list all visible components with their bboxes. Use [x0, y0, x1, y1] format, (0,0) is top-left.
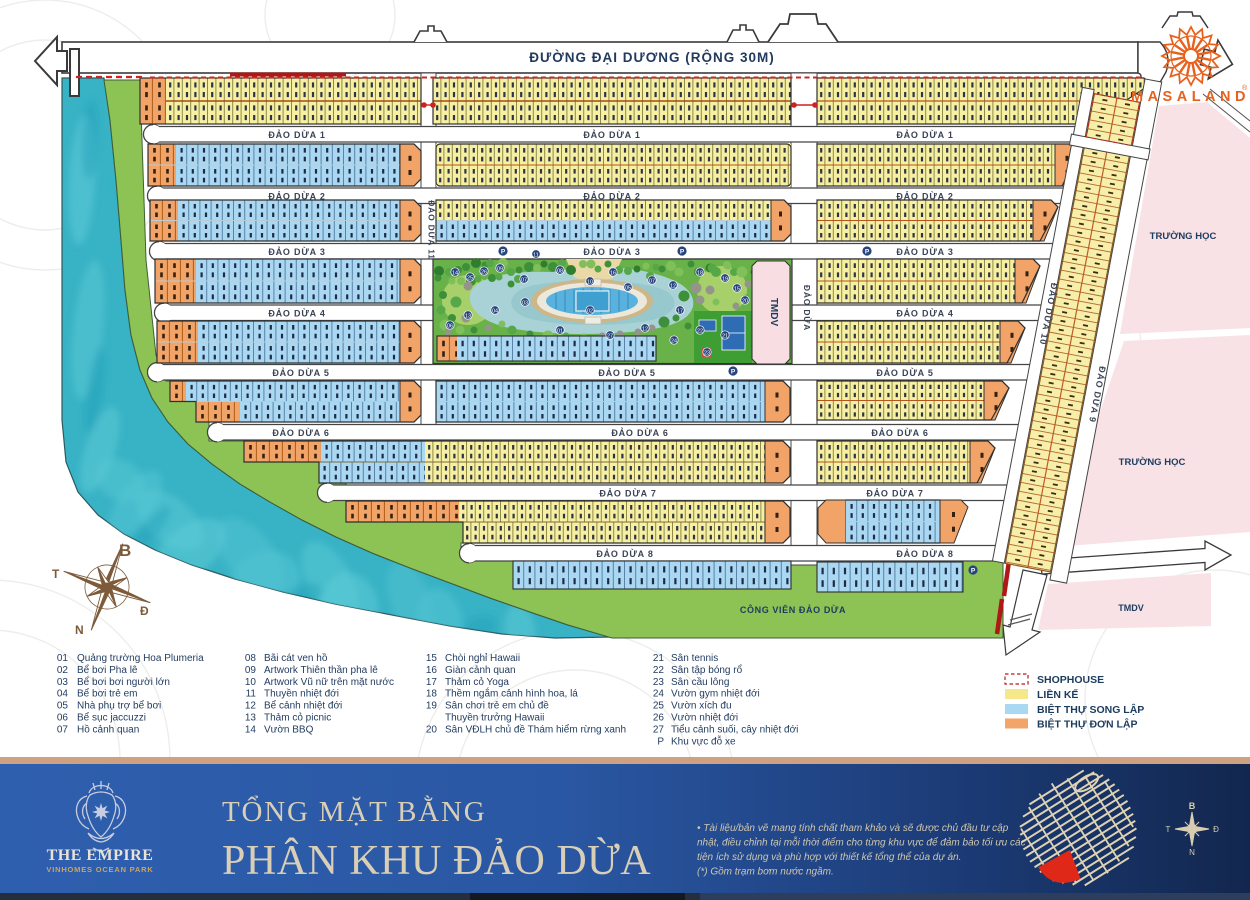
svg-text:TỔNG MẶT BẰNG: TỔNG MẶT BẰNG	[222, 794, 487, 828]
svg-text:Bãi cát ven hồ: Bãi cát ven hồ	[264, 652, 328, 664]
svg-text:Thuyền trưởng Hawaii: Thuyền trưởng Hawaii	[445, 712, 544, 724]
svg-text:ĐƯỜNG ĐẠI DƯƠNG (RỘNG 30M): ĐƯỜNG ĐẠI DƯƠNG (RỘNG 30M)	[529, 50, 774, 65]
svg-text:22: 22	[697, 328, 703, 334]
svg-text:19: 19	[722, 276, 728, 282]
svg-text:Hồ cảnh quan: Hồ cảnh quan	[77, 723, 139, 735]
svg-text:PHÂN KHU ĐẢO DỪA: PHÂN KHU ĐẢO DỪA	[222, 837, 651, 884]
svg-text:ĐẢO DỪA 1: ĐẢO DỪA 1	[268, 129, 325, 140]
svg-text:11: 11	[246, 689, 257, 700]
svg-text:ĐẢO DỪA: ĐẢO DỪA	[802, 285, 813, 331]
svg-text:ĐẢO DỪA 6: ĐẢO DỪA 6	[871, 427, 928, 438]
svg-text:Thuyền nhiệt đới: Thuyền nhiệt đới	[264, 688, 339, 700]
svg-text:BIỆT THỰ SONG LẬP: BIỆT THỰ SONG LẬP	[1037, 703, 1144, 716]
svg-text:nhật, điều chỉnh tại mỗi thời: nhật, điều chỉnh tại mỗi thời điểm cho t…	[697, 836, 1026, 849]
svg-text:13: 13	[245, 713, 257, 724]
svg-text:12: 12	[245, 701, 257, 712]
svg-text:23: 23	[653, 677, 665, 688]
svg-text:Bể bơi trẻ em: Bể bơi trẻ em	[77, 688, 137, 700]
svg-text:ĐẢO DỪA 2: ĐẢO DỪA 2	[268, 191, 325, 202]
svg-text:05: 05	[57, 701, 69, 712]
svg-text:03: 03	[57, 677, 69, 688]
svg-text:ĐẢO DỪA 3: ĐẢO DỪA 3	[896, 246, 953, 257]
svg-text:21: 21	[653, 653, 665, 664]
svg-text:15: 15	[734, 286, 740, 292]
svg-text:Bể bơi Pha lê: Bể bơi Pha lê	[77, 664, 138, 676]
svg-text:26: 26	[653, 713, 665, 724]
svg-text:TMDV: TMDV	[1118, 603, 1144, 613]
svg-text:26: 26	[481, 269, 487, 275]
svg-text:P: P	[680, 249, 685, 256]
svg-text:18: 18	[426, 689, 438, 700]
svg-text:Thềm ngắm cảnh hình hoa, lá: Thềm ngắm cảnh hình hoa, lá	[445, 687, 578, 700]
svg-text:ĐẢO DỪA 6: ĐẢO DỪA 6	[611, 427, 668, 438]
svg-text:N: N	[75, 623, 84, 637]
svg-text:Thảm cỏ picnic: Thảm cỏ picnic	[264, 712, 331, 724]
svg-text:21: 21	[722, 333, 728, 339]
svg-text:03: 03	[522, 300, 528, 306]
svg-text:06: 06	[57, 713, 69, 724]
svg-text:08: 08	[245, 653, 257, 664]
svg-text:TRƯỜNG HỌC: TRƯỜNG HỌC	[1150, 230, 1217, 242]
svg-text:Sân tennis: Sân tennis	[671, 653, 718, 664]
svg-text:ĐẢO DỪA 5: ĐẢO DỪA 5	[272, 367, 329, 378]
svg-text:22: 22	[653, 665, 665, 676]
svg-text:®: ®	[1242, 84, 1248, 92]
svg-text:T: T	[1166, 825, 1171, 834]
svg-text:Artwork Vũ nữ trên mặt nước: Artwork Vũ nữ trên mặt nước	[264, 677, 394, 688]
svg-text:ĐẢO DỪA 8: ĐẢO DỪA 8	[596, 548, 653, 559]
svg-text:15: 15	[426, 653, 438, 664]
svg-text:07: 07	[57, 724, 69, 735]
svg-text:ĐẢO DỪA 2: ĐẢO DỪA 2	[583, 191, 640, 202]
svg-text:17: 17	[426, 677, 438, 688]
svg-text:P: P	[971, 568, 976, 575]
svg-text:BIỆT THỰ ĐƠN LẬP: BIỆT THỰ ĐƠN LẬP	[1037, 718, 1138, 731]
svg-text:07: 07	[521, 277, 527, 283]
svg-text:10: 10	[587, 279, 593, 285]
svg-text:tiện ích sử dụng và phù hợp vớ: tiện ích sử dụng và phù hợp với thiết kế…	[697, 851, 961, 863]
svg-text:Đ: Đ	[140, 604, 149, 618]
svg-text:THE EMPIRE: THE EMPIRE	[47, 847, 154, 864]
svg-text:09: 09	[245, 665, 257, 676]
svg-text:• Tài liệu/bản vẽ mang tính ch: • Tài liệu/bản vẽ mang tính chất tham kh…	[697, 822, 1009, 834]
svg-text:17: 17	[677, 308, 683, 314]
svg-text:Vườn xích đu: Vườn xích đu	[671, 701, 732, 712]
svg-text:23: 23	[704, 350, 710, 356]
svg-text:ĐẢO DỪA 4: ĐẢO DỪA 4	[896, 308, 953, 319]
svg-text:SHOPHOUSE: SHOPHOUSE	[1037, 674, 1104, 686]
svg-text:P: P	[731, 369, 736, 376]
svg-text:04: 04	[57, 689, 69, 700]
svg-text:ĐẢO DỪA 8: ĐẢO DỪA 8	[896, 548, 953, 559]
svg-text:B: B	[119, 541, 131, 560]
svg-text:13: 13	[465, 313, 471, 319]
svg-text:Artwork Thiên thần pha lê: Artwork Thiên thần pha lê	[264, 664, 378, 676]
svg-text:VINHOMES OCEAN PARK: VINHOMES OCEAN PARK	[46, 865, 153, 874]
svg-text:Sân VĐLH chủ đề Thám hiểm rừng: Sân VĐLH chủ đề Thám hiểm rừng xanh	[445, 723, 626, 735]
svg-text:CÔNG VIÊN ĐẢO DỪA: CÔNG VIÊN ĐẢO DỪA	[740, 604, 846, 615]
svg-text:16: 16	[610, 270, 616, 276]
svg-text:Quảng trường Hoa Plumeria: Quảng trường Hoa Plumeria	[77, 653, 204, 664]
svg-text:B: B	[1189, 801, 1196, 811]
svg-text:Giàn cảnh quan: Giàn cảnh quan	[445, 665, 516, 676]
svg-text:Vườn nhiệt đới: Vườn nhiệt đới	[671, 713, 738, 724]
svg-text:P: P	[501, 249, 506, 256]
svg-text:20: 20	[742, 298, 748, 304]
svg-text:Vườn gym nhiệt đới: Vườn gym nhiệt đới	[671, 689, 760, 700]
svg-text:MASALAND: MASALAND	[1131, 89, 1250, 105]
svg-text:Sân tập bóng rổ: Sân tập bóng rổ	[671, 664, 743, 676]
svg-text:(*) Gồm trạm bơm nước ngầm.: (*) Gồm trạm bơm nước ngầm.	[697, 866, 834, 878]
svg-text:24: 24	[653, 689, 665, 700]
svg-text:Đ: Đ	[1213, 825, 1219, 834]
svg-text:01: 01	[557, 328, 563, 334]
svg-text:Bể sục jaccuzzi: Bể sục jaccuzzi	[77, 712, 146, 724]
svg-text:18: 18	[697, 270, 703, 276]
svg-text:16: 16	[426, 665, 438, 676]
svg-text:P: P	[865, 249, 870, 256]
svg-text:Vườn BBQ: Vườn BBQ	[264, 724, 314, 735]
svg-text:ĐẢO DỪA 6: ĐẢO DỪA 6	[272, 427, 329, 438]
svg-text:14: 14	[245, 724, 257, 735]
svg-text:ĐẢO DỪA 4: ĐẢO DỪA 4	[268, 308, 325, 319]
svg-text:ĐẢO DỪA 3: ĐẢO DỪA 3	[583, 246, 640, 257]
svg-text:ĐẢO DỪA 7: ĐẢO DỪA 7	[599, 488, 656, 499]
svg-text:25: 25	[467, 275, 473, 281]
svg-text:ĐẢO DỪA 1: ĐẢO DỪA 1	[896, 129, 953, 140]
svg-text:Thảm cỏ Yoga: Thảm cỏ Yoga	[445, 676, 509, 688]
svg-text:P: P	[657, 736, 664, 747]
svg-text:27: 27	[653, 724, 665, 735]
svg-text:12: 12	[642, 326, 648, 332]
svg-text:04: 04	[492, 308, 498, 314]
svg-text:11: 11	[533, 252, 539, 258]
svg-text:02: 02	[57, 665, 69, 676]
svg-text:07: 07	[649, 278, 655, 284]
svg-text:Khu vực đỗ xe: Khu vực đỗ xe	[671, 734, 736, 747]
svg-text:N: N	[1189, 848, 1195, 857]
svg-text:20: 20	[426, 724, 438, 735]
svg-text:ĐẢO DỪA 11: ĐẢO DỪA 11	[427, 200, 438, 260]
svg-text:24: 24	[671, 338, 677, 344]
svg-text:ĐẢO DỪA 7: ĐẢO DỪA 7	[866, 488, 923, 499]
svg-text:LIỀN KẾ: LIỀN KẾ	[1037, 688, 1078, 701]
svg-text:05: 05	[625, 285, 631, 291]
svg-text:Bể cảnh nhiệt đới: Bể cảnh nhiệt đới	[264, 700, 342, 712]
svg-text:09: 09	[497, 266, 503, 272]
svg-text:Sân chơi trẻ em chủ đề: Sân chơi trẻ em chủ đề	[445, 700, 549, 712]
svg-text:19: 19	[426, 701, 438, 712]
svg-text:TMDV: TMDV	[768, 298, 779, 327]
svg-text:Nhà phụ trợ bể bơi: Nhà phụ trợ bể bơi	[77, 700, 161, 712]
svg-text:Bể bơi bơi người lớn: Bể bơi bơi người lớn	[77, 676, 170, 688]
svg-text:ĐẢO DỪA 5: ĐẢO DỪA 5	[598, 367, 655, 378]
svg-text:25: 25	[653, 701, 665, 712]
svg-text:08: 08	[557, 268, 563, 274]
svg-text:ĐẢO DỪA 5: ĐẢO DỪA 5	[876, 367, 933, 378]
svg-text:ĐẢO DỪA 3: ĐẢO DỪA 3	[268, 246, 325, 257]
svg-text:10: 10	[245, 677, 257, 688]
svg-text:Chòi nghỉ Hawaii: Chòi nghỉ Hawaii	[445, 652, 520, 664]
svg-text:02: 02	[587, 308, 593, 314]
svg-text:06: 06	[447, 323, 453, 329]
svg-text:Tiểu cảnh suối, cây nhiệt đới: Tiểu cảnh suối, cây nhiệt đới	[671, 723, 798, 735]
svg-text:TRƯỜNG HỌC: TRƯỜNG HỌC	[1119, 456, 1186, 468]
svg-text:ĐẢO DỪA 2: ĐẢO DỪA 2	[896, 191, 953, 202]
svg-text:T: T	[52, 567, 60, 581]
svg-text:12: 12	[670, 283, 676, 289]
svg-text:27: 27	[607, 333, 613, 339]
svg-text:01: 01	[57, 653, 69, 664]
svg-text:Sân cầu lông: Sân cầu lông	[671, 676, 729, 688]
svg-text:ĐẢO DỪA 1: ĐẢO DỪA 1	[583, 129, 640, 140]
svg-text:14: 14	[452, 270, 458, 276]
